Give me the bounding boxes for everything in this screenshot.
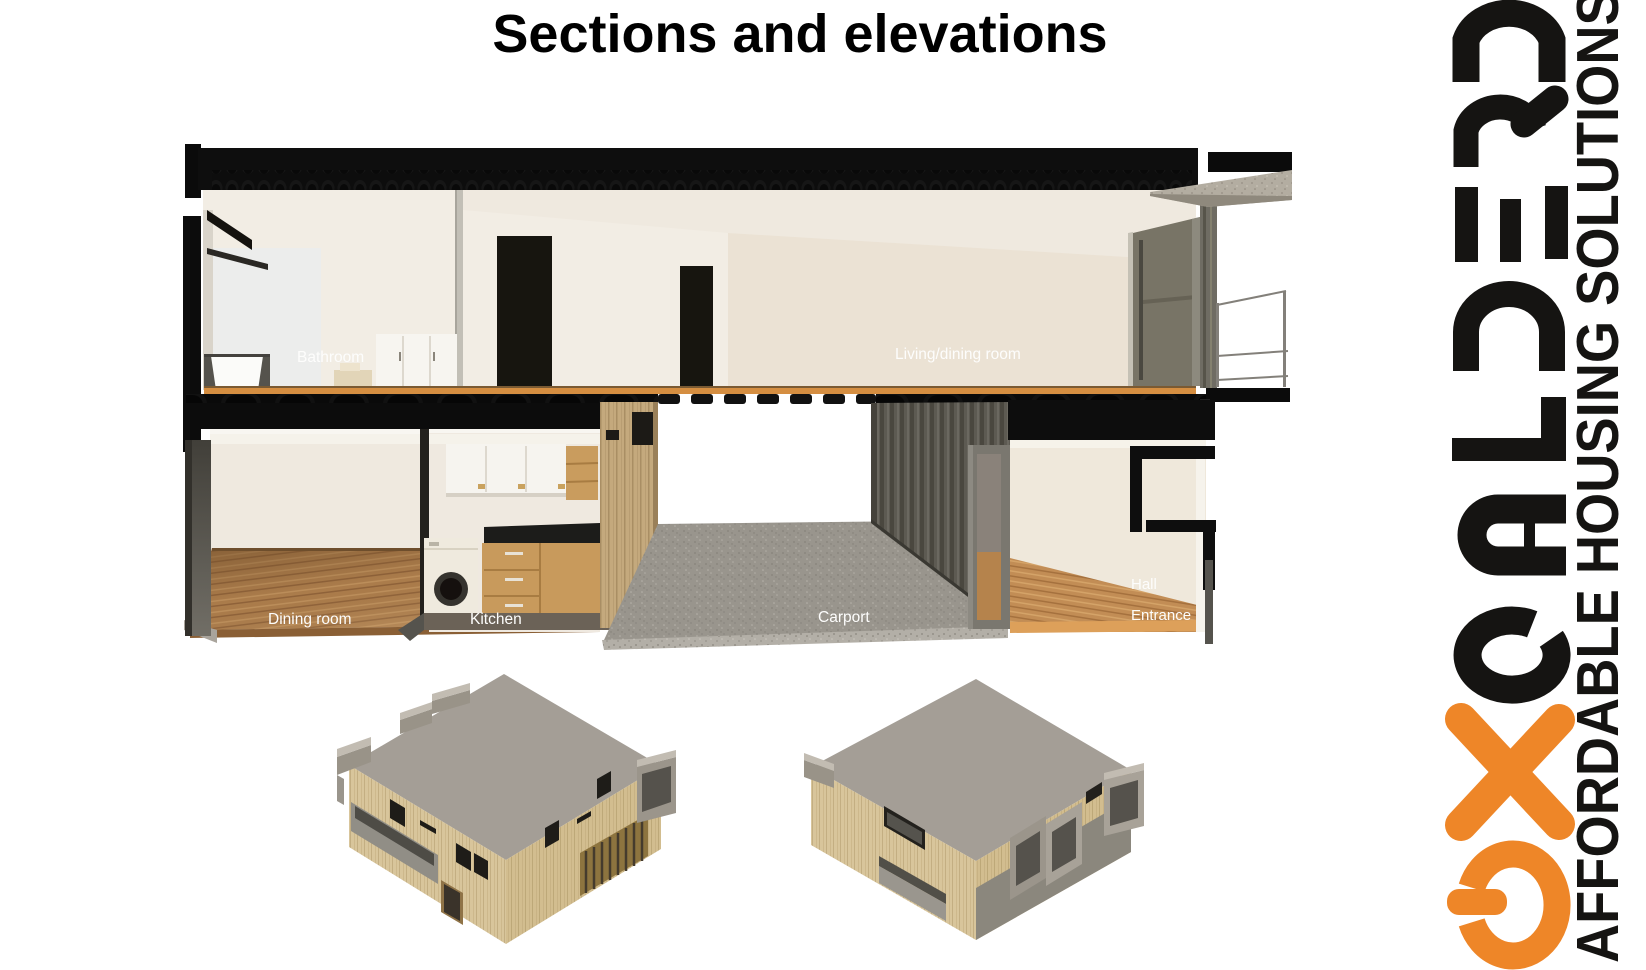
- svg-text:AFFORDABLE HOUSING SOLUTIONS: AFFORDABLE HOUSING SOLUTIONS: [1566, 0, 1632, 963]
- svg-text:Entrance: Entrance: [1131, 607, 1191, 624]
- svg-text:Sections and elevations: Sections and elevations: [492, 4, 1107, 64]
- svg-text:Bathroom: Bathroom: [297, 349, 364, 366]
- svg-text:Carport: Carport: [818, 609, 870, 626]
- svg-text:Hall: Hall: [1131, 576, 1157, 593]
- svg-text:Dining room: Dining room: [268, 611, 352, 628]
- svg-text:Kitchen: Kitchen: [470, 611, 522, 628]
- svg-text:Living/dining room: Living/dining room: [895, 346, 1021, 363]
